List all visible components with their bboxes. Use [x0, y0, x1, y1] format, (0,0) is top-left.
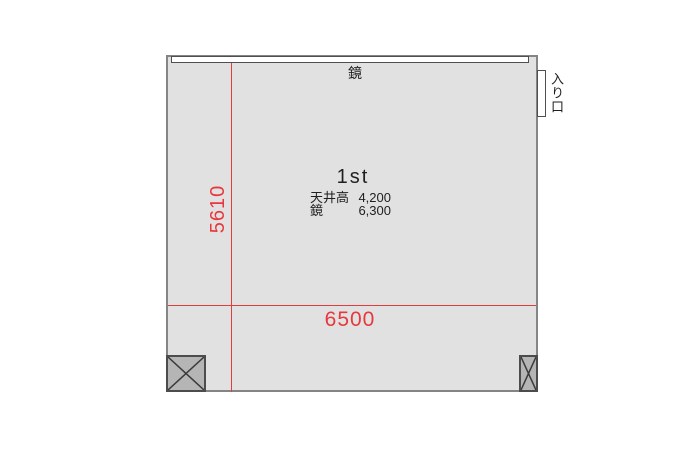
mirror-label: 鏡 [330, 63, 380, 83]
spec-value: 6,300 [358, 205, 391, 218]
pillar-bottom-left [166, 355, 206, 392]
dimension-line-horizontal [168, 305, 536, 306]
dimension-line-vertical [231, 63, 232, 392]
pillar-bottom-right [519, 355, 538, 392]
entrance-door-symbol [537, 70, 546, 117]
mirror-wall-strip [171, 56, 529, 63]
entrance-label: 入り口 [547, 72, 566, 114]
spec-label: 鏡 [310, 205, 323, 218]
cross-hatch-icon [168, 357, 204, 390]
room-specs: 天井高 4,200 鏡 6,300 [310, 192, 391, 217]
room-title: 1st [303, 166, 403, 189]
cross-hatch-icon [521, 357, 536, 390]
spec-row-mirror-width: 鏡 6,300 [310, 205, 391, 218]
dimension-depth-5610: 5610 [207, 174, 231, 244]
dimension-width-6500: 6500 [318, 308, 382, 332]
floorplan-canvas: 鏡 入り口 5610 6500 1st 天井高 4,200 鏡 6,300 [0, 0, 700, 465]
